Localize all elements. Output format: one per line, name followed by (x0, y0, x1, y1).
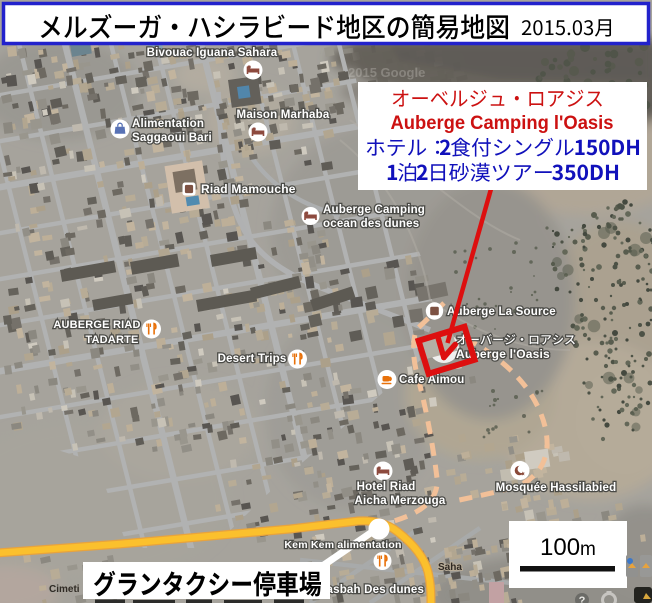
svg-text:Saggaoui Bari: Saggaoui Bari (132, 132, 212, 144)
svg-text:Auberge La Source: Auberge La Source (447, 306, 556, 318)
svg-text:Hotel Riad: Hotel Riad (357, 481, 416, 493)
svg-text:Bivouac Iguana Sahara: Bivouac Iguana Sahara (147, 47, 278, 59)
svg-text:Kasbah Des dunes: Kasbah Des dunes (318, 584, 424, 596)
svg-text:Cimeti: Cimeti (49, 584, 80, 595)
svg-text:2015 Google: 2015 Google (348, 65, 425, 80)
svg-text:Auberge Camping: Auberge Camping (323, 204, 425, 216)
svg-text:100m: 100m (540, 534, 596, 561)
svg-text:ocean des dunes: ocean des dunes (323, 218, 419, 230)
svg-text:Auberge Camping l'Oasis: Auberge Camping l'Oasis (391, 113, 614, 134)
svg-text:Maison Marhaba: Maison Marhaba (237, 109, 330, 121)
svg-text:Aicha Merzouga: Aicha Merzouga (355, 495, 446, 507)
svg-text:TADARTE: TADARTE (85, 334, 138, 346)
svg-text:Kem Kem alimentation: Kem Kem alimentation (284, 539, 401, 551)
svg-text:Mosquée Hassilabied: Mosquée Hassilabied (496, 482, 617, 494)
svg-text:Alimentation: Alimentation (132, 118, 204, 130)
svg-text:Saha: Saha (438, 562, 462, 573)
svg-text:Desert Trips: Desert Trips (218, 353, 287, 365)
svg-text:AUBERGE RIAD: AUBERGE RIAD (53, 319, 140, 331)
svg-text:?: ? (579, 595, 586, 603)
svg-text:Riad Mamouche: Riad Mamouche (201, 182, 296, 196)
